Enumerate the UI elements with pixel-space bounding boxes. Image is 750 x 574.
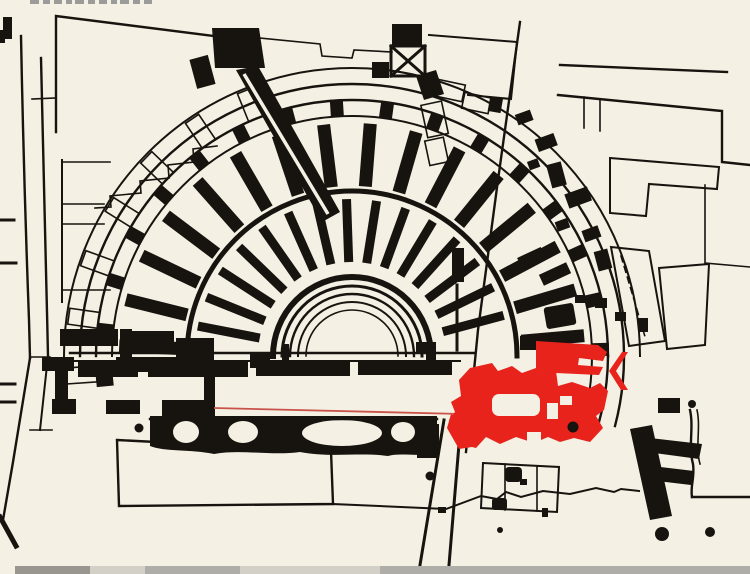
red-reference-line (214, 408, 462, 414)
red-building-north-bar (536, 341, 607, 376)
site-plan-figure (0, 0, 750, 574)
site-plan-canvas (0, 0, 750, 574)
cropped-caption-fragment (30, 0, 152, 4)
scan-edge-strip (0, 566, 750, 574)
orchestra-arcs (273, 277, 431, 356)
left-edge-marks (0, 17, 68, 546)
